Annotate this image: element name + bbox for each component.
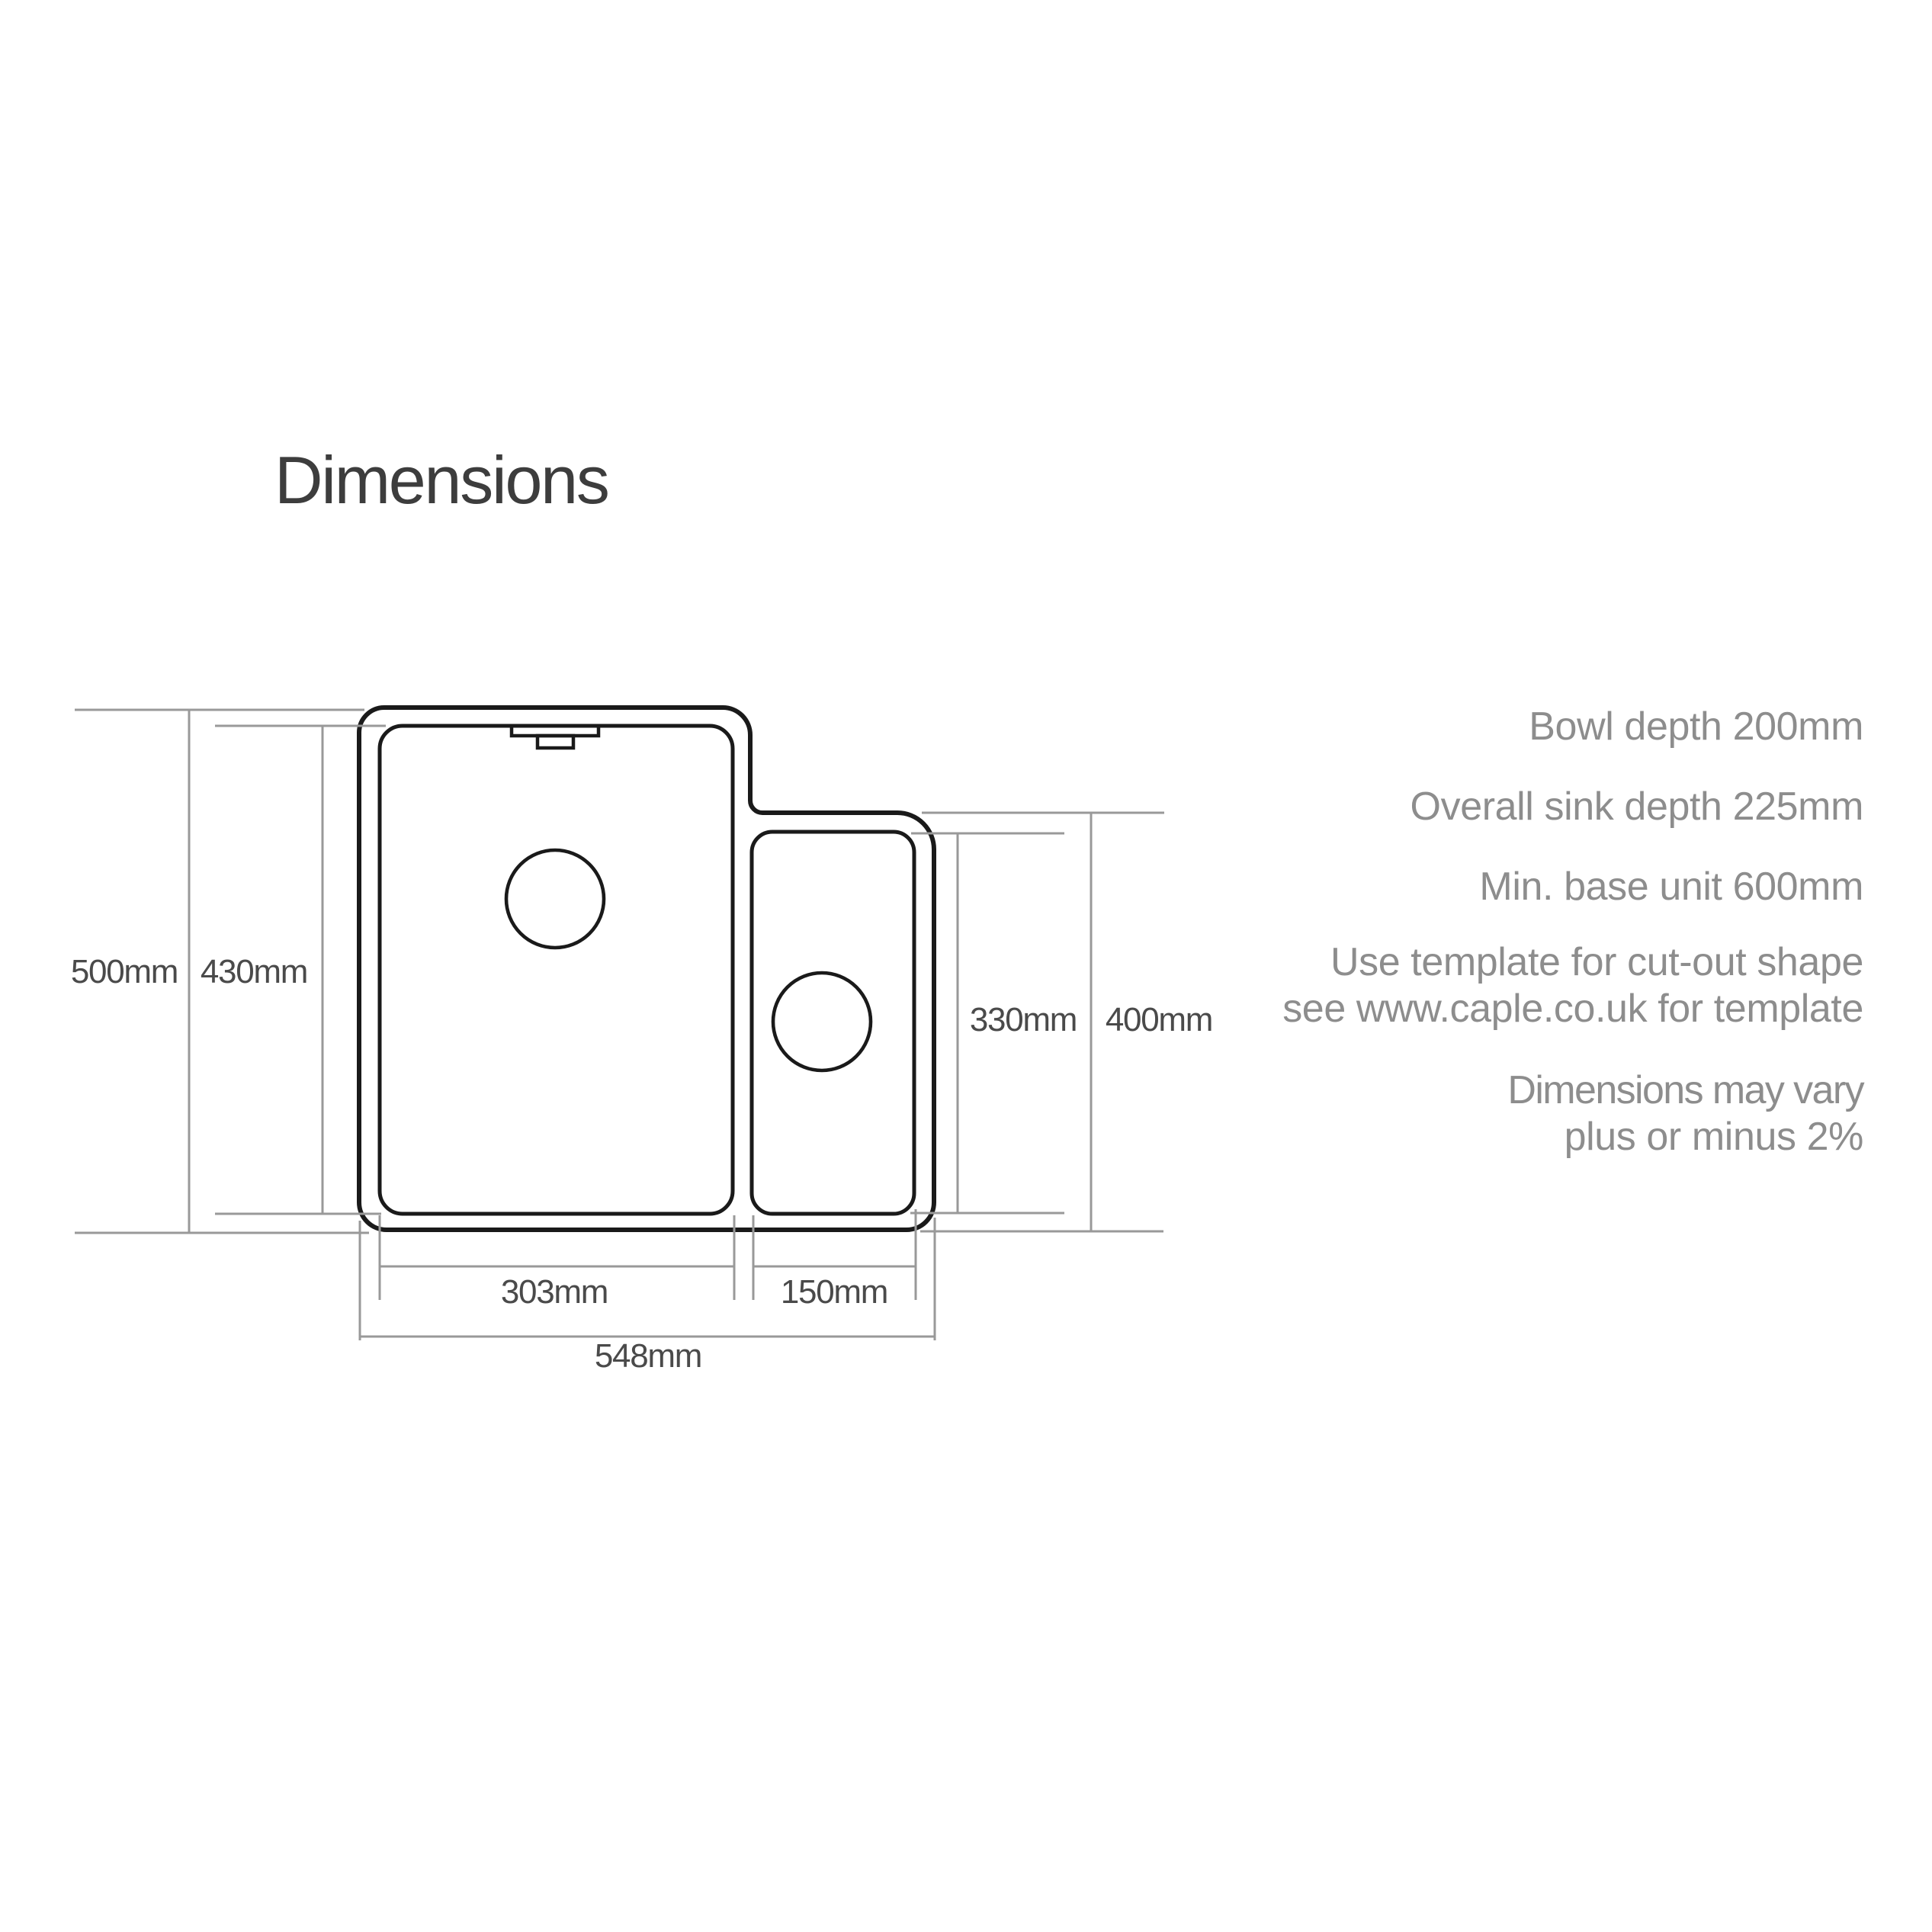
svg-text:Bowl depth 200mm: Bowl depth 200mm (1529, 704, 1863, 749)
svg-text:Dimensions: Dimensions (274, 442, 608, 518)
svg-text:Dimensions may vary: Dimensions may vary (1507, 1068, 1864, 1112)
svg-text:303mm: 303mm (501, 1273, 608, 1311)
svg-text:150mm: 150mm (781, 1273, 887, 1311)
svg-text:330mm: 330mm (970, 1001, 1077, 1038)
svg-text:500mm: 500mm (71, 953, 178, 990)
svg-text:430mm: 430mm (201, 953, 307, 990)
svg-text:548mm: 548mm (595, 1337, 701, 1375)
svg-text:400mm: 400mm (1106, 1001, 1212, 1038)
svg-text:Overall sink depth 225mm: Overall sink depth 225mm (1410, 785, 1863, 829)
svg-text:plus or minus 2%: plus or minus 2% (1565, 1115, 1863, 1159)
svg-text:Min. base unit 600mm: Min. base unit 600mm (1479, 865, 1863, 909)
svg-text:Use template for cut-out shape: Use template for cut-out shape (1330, 940, 1863, 984)
svg-text:see www.caple.co.uk for templa: see www.caple.co.uk for template (1282, 987, 1863, 1031)
